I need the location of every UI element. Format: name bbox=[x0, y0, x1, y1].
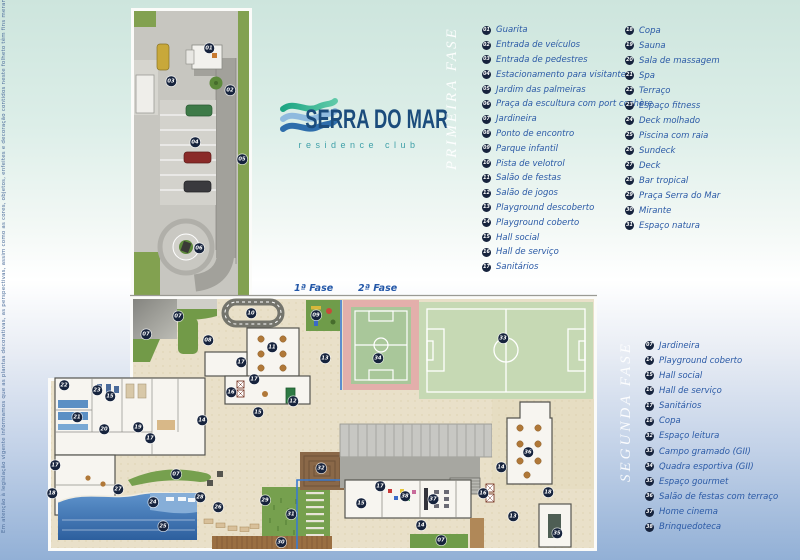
legend-item-number: 11 bbox=[482, 174, 491, 183]
legend-item-label: Guarita bbox=[496, 25, 528, 35]
legend-item: 32Espaço leitura bbox=[645, 429, 778, 444]
legend-item: 26Sundeck bbox=[625, 143, 720, 158]
guard-house bbox=[192, 45, 222, 69]
legend-item: 07Jardineira bbox=[645, 338, 778, 353]
legend-item-number: 27 bbox=[625, 161, 634, 170]
main-plan bbox=[48, 296, 597, 552]
legend-item: 23Espaço fitness bbox=[625, 98, 720, 113]
lawn-patch bbox=[134, 11, 156, 27]
legend-item: 34Quadra esportiva (GII) bbox=[645, 459, 778, 474]
spa-pool bbox=[58, 400, 88, 408]
legend-item-number: 05 bbox=[482, 85, 491, 94]
legend-item: 38Brinquedoteca bbox=[645, 520, 778, 535]
legend-item-label: Jardineira bbox=[659, 341, 700, 351]
legend-item: 17Sanitários bbox=[645, 399, 778, 414]
legend-item-number: 35 bbox=[645, 477, 654, 486]
legend-item-number: 28 bbox=[625, 176, 634, 185]
legend-item-label: Copa bbox=[639, 26, 661, 36]
legend-item-number: 18 bbox=[645, 417, 654, 426]
legend-item-number: 15 bbox=[645, 371, 654, 380]
legend-item-label: Piscina com raia bbox=[639, 131, 708, 141]
legend-item-number: 06 bbox=[482, 100, 491, 109]
legend-item-label: Terraço bbox=[639, 86, 670, 96]
legend-item-label: Jardim das palmeiras bbox=[496, 85, 586, 95]
legend-item-label: Copa bbox=[659, 416, 681, 426]
legend-item-number: 15 bbox=[482, 233, 491, 242]
legend-item-number: 07 bbox=[482, 115, 491, 124]
legend-item: 15Hall social bbox=[645, 368, 778, 383]
legend-item: 14Playground coberto bbox=[645, 353, 778, 368]
legend-item-number: 16 bbox=[645, 386, 654, 395]
legend-item: 19Sauna bbox=[625, 38, 720, 53]
covered-structure-roof bbox=[340, 424, 492, 457]
spa-pool bbox=[58, 412, 88, 420]
legend-item-label: Entrada de pedestres bbox=[496, 55, 588, 65]
play-equipment bbox=[326, 308, 332, 314]
legend-item-label: Spa bbox=[639, 71, 655, 81]
legend-item-number: 29 bbox=[625, 191, 634, 200]
legend-item: 18Copa bbox=[625, 23, 720, 38]
palm-garden-strip bbox=[238, 11, 249, 296]
legend-item-number: 22 bbox=[625, 86, 634, 95]
walkway bbox=[177, 299, 217, 309]
legend-item-label: Brinquedoteca bbox=[659, 522, 721, 532]
legend-item-label: Campo gramado (GII) bbox=[659, 447, 751, 457]
legend-item-label: Entrada de veículos bbox=[496, 40, 580, 50]
legend-item-number: 34 bbox=[645, 462, 654, 471]
legend-item-number: 19 bbox=[625, 41, 634, 50]
play-equipment bbox=[331, 320, 336, 325]
legend-item-label: Playground coberto bbox=[496, 218, 579, 228]
legend-item: 35Espaço gourmet bbox=[645, 474, 778, 489]
legend-item-label: Estacionamento para visitantes bbox=[496, 70, 630, 80]
play-equipment bbox=[314, 318, 318, 326]
legend-item-label: Playground coberto bbox=[659, 356, 742, 366]
hall-annex bbox=[205, 352, 247, 376]
legend-item-label: Sundeck bbox=[639, 146, 675, 156]
legend-item-number: 33 bbox=[645, 447, 654, 456]
legend-item-label: Quadra esportiva (GII) bbox=[659, 462, 754, 472]
legend-item-label: Espaço fitness bbox=[639, 101, 700, 111]
entry-plan bbox=[131, 8, 252, 299]
car-yellow bbox=[157, 44, 169, 70]
legend-item-number: 07 bbox=[645, 341, 654, 350]
legend-item-number: 09 bbox=[482, 144, 491, 153]
legend-item-label: Playground descoberto bbox=[496, 203, 594, 213]
legend-item: 30Mirante bbox=[625, 203, 720, 218]
legend-item-number: 37 bbox=[645, 508, 654, 517]
party-hall bbox=[247, 328, 299, 376]
legend-item-number: 31 bbox=[625, 221, 634, 230]
legend-item: 28Bar tropical bbox=[625, 173, 720, 188]
spa-deck bbox=[58, 424, 88, 430]
legend-item-number: 02 bbox=[482, 41, 491, 50]
legend-item: 27Deck bbox=[625, 158, 720, 173]
legend-item-number: 12 bbox=[482, 189, 491, 198]
disclaimer-text: Em atenção à legislação vigente informam… bbox=[1, 28, 7, 533]
playground-area bbox=[306, 300, 340, 331]
existing-roof bbox=[133, 299, 177, 339]
legend-item-number: 04 bbox=[482, 70, 491, 79]
legend-item: 20Sala de massagem bbox=[625, 53, 720, 68]
legend-item-label: Sala de massagem bbox=[639, 56, 720, 66]
legend-item: 17Sanitários bbox=[482, 260, 653, 275]
legend-item: 31Espaço natura bbox=[625, 218, 720, 233]
wet-deck bbox=[150, 493, 197, 513]
legend-item-number: 25 bbox=[625, 131, 634, 140]
legend-item-label: Espaço gourmet bbox=[659, 477, 728, 487]
legend-item-label: Jardineira bbox=[496, 114, 537, 124]
legend-item-label: Home cinema bbox=[659, 507, 718, 517]
guard-house-annex bbox=[186, 50, 194, 64]
plan-label-fase2: 2ª Fase bbox=[358, 283, 397, 294]
legend-primeira-title: PRIMEIRA FASE bbox=[444, 20, 461, 170]
legend-item: 18Copa bbox=[645, 414, 778, 429]
logo-subtitle: residence club bbox=[280, 140, 438, 150]
table bbox=[262, 391, 268, 397]
legend-item-number: 30 bbox=[625, 206, 634, 215]
legend-item: 24Deck molhado bbox=[625, 113, 720, 128]
legend-item-number: 24 bbox=[625, 116, 634, 125]
legend-item: 36Salão de festas com terraço bbox=[645, 489, 778, 504]
reading-space-roof bbox=[300, 452, 344, 490]
legend-item-label: Deck molhado bbox=[639, 116, 700, 126]
legend-item-number: 14 bbox=[645, 356, 654, 365]
legend-item-number: 10 bbox=[482, 159, 491, 168]
legend-item-label: Hall social bbox=[496, 233, 539, 243]
legend-item-number: 18 bbox=[625, 26, 634, 35]
legend-item-number: 03 bbox=[482, 55, 491, 64]
play-equipment bbox=[311, 306, 321, 310]
legend-item: 33Campo gramado (GII) bbox=[645, 444, 778, 459]
legend-item-label: Sanitários bbox=[659, 401, 701, 411]
massage-bed bbox=[126, 384, 134, 398]
service-structure bbox=[136, 75, 154, 113]
legend-item-label: Espaço natura bbox=[639, 221, 700, 231]
legend-item-label: Praça Serra do Mar bbox=[639, 191, 720, 201]
tree-center bbox=[214, 81, 218, 85]
legend-primeira-col2: 18Copa19Sauna20Sala de massagem21Spa22Te… bbox=[625, 23, 720, 233]
legend-item-number: 14 bbox=[482, 218, 491, 227]
legend-item-label: Salão de jogos bbox=[496, 188, 558, 198]
legend-segunda-title: SEGUNDA FASE bbox=[618, 340, 635, 482]
logo: SERRA DO MAR residence club bbox=[280, 96, 438, 150]
legend-item-number: 20 bbox=[625, 56, 634, 65]
legend-item-label: Hall social bbox=[659, 371, 702, 381]
lawn-patch bbox=[134, 252, 160, 296]
legend-item-number: 36 bbox=[645, 492, 654, 501]
legend-item-label: Sauna bbox=[639, 41, 666, 51]
legend-item-number: 13 bbox=[482, 203, 491, 212]
massage-bed bbox=[138, 384, 146, 398]
legend-item-label: Salão de festas com terraço bbox=[659, 492, 778, 502]
legend-item-label: Parque infantil bbox=[496, 144, 558, 154]
legend-item: 29Praça Serra do Mar bbox=[625, 188, 720, 203]
legend-item-number: 38 bbox=[645, 523, 654, 532]
gourmet-table bbox=[548, 514, 561, 538]
legend-item-label: Espaço leitura bbox=[659, 431, 719, 441]
wood-path bbox=[470, 518, 484, 548]
legend-item-number: 08 bbox=[482, 129, 491, 138]
legend-item-label: Deck bbox=[639, 161, 660, 171]
legend-item-label: Sanitários bbox=[496, 262, 538, 272]
legend-item-number: 26 bbox=[625, 146, 634, 155]
legend-item: 16Hall de serviço bbox=[645, 383, 778, 398]
plan-label-fase1: 1ª Fase bbox=[294, 283, 333, 294]
car-dark bbox=[184, 181, 211, 192]
sauna-bench bbox=[157, 420, 175, 430]
legend-item-label: Hall de serviço bbox=[659, 386, 722, 396]
pool-table bbox=[286, 388, 295, 403]
legend-item-label: Pista de velotrol bbox=[496, 159, 565, 169]
planter-strip bbox=[410, 534, 468, 548]
guard-house-detail bbox=[212, 53, 217, 58]
legend-item: 21Spa bbox=[625, 68, 720, 83]
planter bbox=[178, 318, 198, 354]
legend-item-number: 01 bbox=[482, 26, 491, 35]
legend-item-label: Hall de serviço bbox=[496, 247, 559, 257]
brochure-site-plan: 0102030405060707070708091011121313141414… bbox=[0, 0, 800, 560]
car-red bbox=[184, 152, 211, 163]
car-green bbox=[186, 105, 212, 116]
legend-item-number: 16 bbox=[482, 248, 491, 257]
legend-item-number: 23 bbox=[625, 101, 634, 110]
legend-item-number: 17 bbox=[645, 402, 654, 411]
legend-item: 25Piscina com raia bbox=[625, 128, 720, 143]
legend-item-label: Salão de festas bbox=[496, 173, 561, 183]
umbrella-table bbox=[207, 480, 213, 486]
legend-item: 22Terraço bbox=[625, 83, 720, 98]
legend-item: 16Hall de serviço bbox=[482, 245, 653, 260]
legend-item-label: Ponto de encontro bbox=[496, 129, 574, 139]
legend-item-number: 32 bbox=[645, 432, 654, 441]
legend-item-number: 21 bbox=[625, 71, 634, 80]
legend-item-number: 17 bbox=[482, 263, 491, 272]
legend-item-label: Bar tropical bbox=[639, 176, 688, 186]
legend-item-label: Mirante bbox=[639, 206, 671, 216]
umbrella-table bbox=[217, 471, 223, 477]
logo-title: SERRA DO MAR bbox=[305, 106, 412, 133]
legend-item: 37Home cinema bbox=[645, 505, 778, 520]
legend-segunda-items: 07Jardineira14Playground coberto15Hall s… bbox=[645, 338, 778, 535]
cinema-screen bbox=[424, 488, 428, 510]
